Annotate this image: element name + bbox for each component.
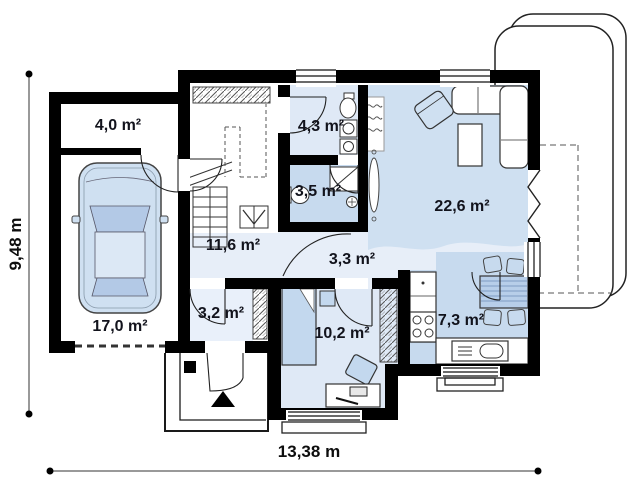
room-label-wc: 3,5 m² xyxy=(295,183,341,201)
car xyxy=(72,163,168,313)
room-label-garage: 17,0 m² xyxy=(92,318,147,336)
door-gap xyxy=(178,159,190,191)
room-label-kitchen: 7,3 m² xyxy=(438,312,484,330)
room-label-bedroom: 10,2 m² xyxy=(314,325,369,343)
room-label-entry: 3,2 m² xyxy=(198,305,244,323)
dimension-height-label: 9,48 m xyxy=(6,218,26,271)
room-label-bathroom: 4,3 m² xyxy=(298,118,344,136)
entrance-porch xyxy=(165,353,268,431)
room-label-hall: 11,6 m² xyxy=(206,237,260,255)
dimension-width-label: 13,38 m xyxy=(278,442,340,462)
floor-plan-canvas: 4,0 m² 17,0 m² 11,6 m² 4,3 m² 3,5 m² 22,… xyxy=(0,0,640,493)
floor-plan-drawing xyxy=(0,0,640,493)
room-label-corridor: 3,3 m² xyxy=(329,251,375,269)
room-label-storage: 4,0 m² xyxy=(95,117,141,135)
room-label-living: 22,6 m² xyxy=(434,198,489,216)
